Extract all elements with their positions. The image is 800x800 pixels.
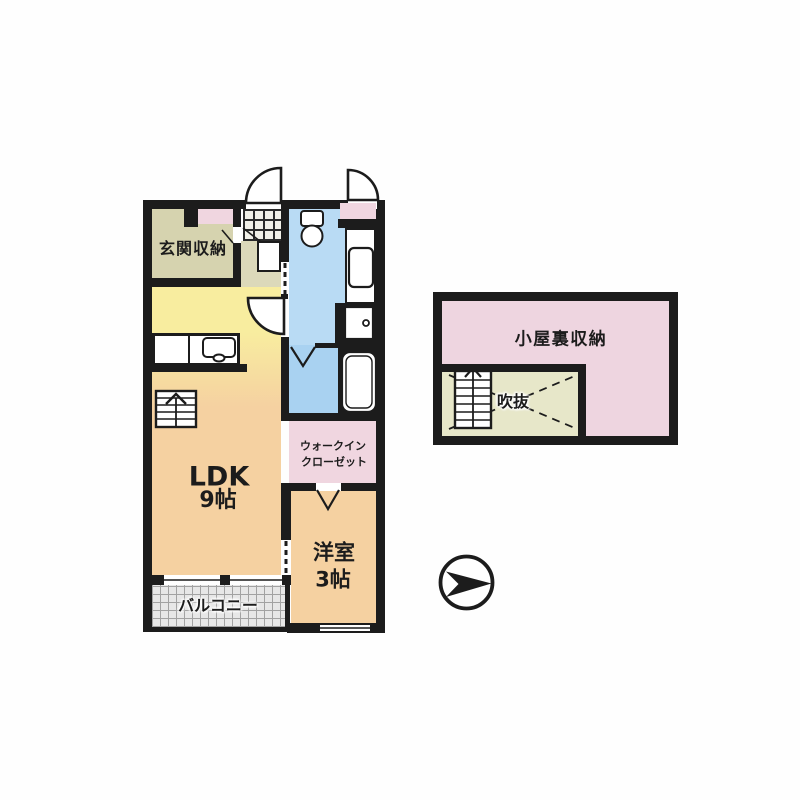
balcony-partition — [285, 585, 290, 627]
entrance-door-swing-icon — [246, 168, 281, 203]
second-door-swing-icon — [348, 170, 378, 200]
shoe-cabinet — [257, 241, 281, 272]
storage-door-opening — [233, 227, 241, 243]
compass-icon — [441, 557, 493, 609]
ldk-window-1 — [162, 575, 222, 585]
wic-label-line1: ウォークイン — [300, 441, 366, 452]
entrance-door-opening — [246, 200, 281, 209]
washroom-shelf-wall — [338, 219, 376, 228]
attic-storage-label: 小屋裏収納 — [515, 332, 608, 349]
main-wall-bottom-left — [143, 627, 287, 632]
wic-label-line2: クローゼット — [301, 457, 367, 468]
void-label: 吹抜 — [497, 394, 529, 410]
washroom-shelf-pink — [340, 203, 376, 219]
washer-space — [345, 228, 376, 304]
western-room-window — [318, 625, 372, 631]
attic-wall-left — [433, 292, 442, 445]
attic-wall-top — [433, 292, 678, 301]
ldk-room — [152, 287, 281, 575]
western-left-wall — [281, 491, 291, 540]
washbasin-recess — [335, 303, 377, 350]
washroom-left-wall — [281, 337, 289, 413]
balcony-label: バルコニー — [178, 598, 258, 614]
ldk-window-2 — [228, 575, 284, 585]
entrance-shelf-pink — [198, 209, 233, 224]
wic-door-opening — [316, 483, 341, 491]
void-top-wall — [442, 364, 586, 372]
floor-plan-canvas: 玄関収納 LDK 9帖 ウォークイン クローゼット 洋室 3帖 バルコニー 小屋… — [0, 0, 800, 800]
void-right-wall — [578, 364, 586, 436]
ldk-label: LDK — [189, 464, 250, 491]
main-wall-left — [143, 200, 152, 632]
ldk-size-label: 9帖 — [199, 490, 236, 512]
storage-right-wall — [233, 209, 241, 278]
western-room-label: 洋室 — [313, 543, 355, 564]
bathroom — [289, 345, 338, 413]
entrance-wall-stub — [184, 209, 198, 227]
attic-wall-right — [669, 292, 678, 445]
bath-door-wall — [315, 343, 338, 348]
main-wall-right — [376, 200, 385, 632]
kitchen-counter-divider — [188, 336, 190, 363]
kitchen-counter-edge — [152, 364, 247, 372]
western-room-size-label: 3帖 — [315, 570, 351, 591]
bathtub-surround — [338, 348, 377, 415]
attic-wall-bottom — [433, 436, 678, 445]
entrance-storage-label: 玄関収納 — [159, 241, 227, 257]
storage-bottom-wall — [152, 278, 241, 287]
hall-washroom-wall — [281, 209, 289, 262]
washroom-wic-wall — [281, 413, 376, 421]
entrance-tile-floor — [243, 209, 281, 241]
kitchen-counter — [152, 333, 240, 366]
